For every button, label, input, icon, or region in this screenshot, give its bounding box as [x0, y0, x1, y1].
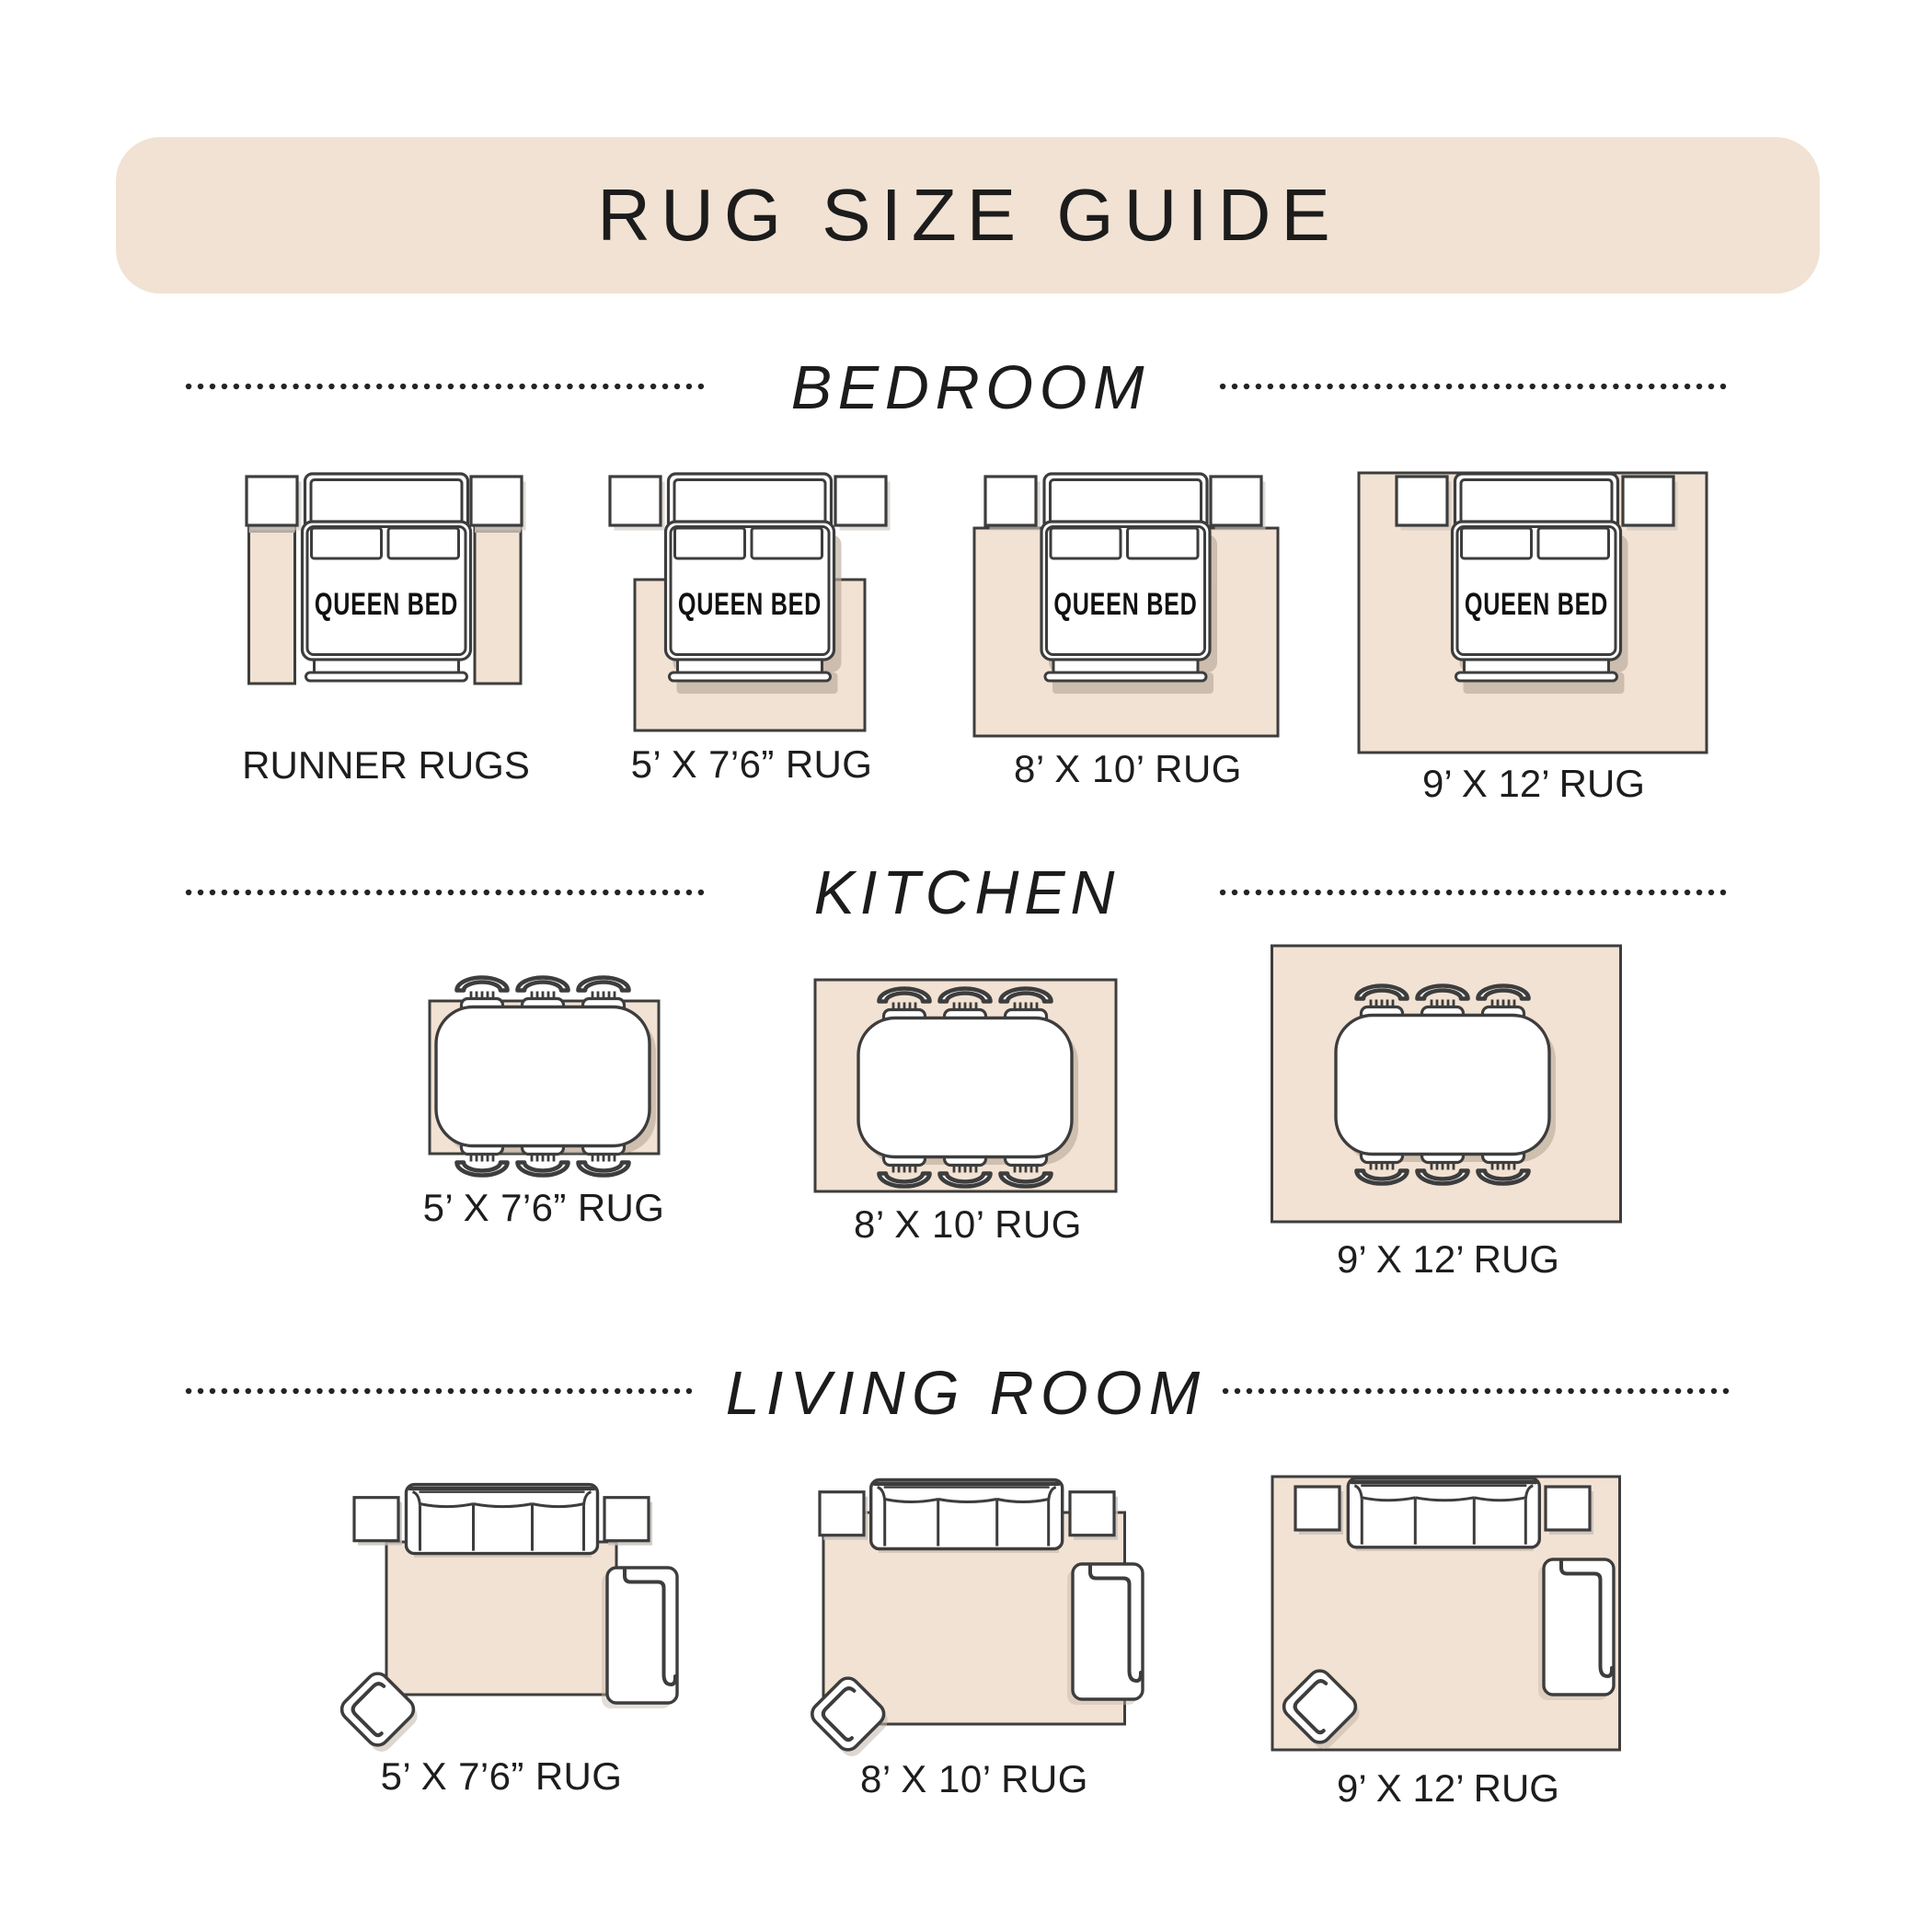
- svg-text:RUNNER RUGS: RUNNER RUGS: [242, 743, 530, 787]
- svg-text:9’ X 12’ RUG: 9’ X 12’ RUG: [1337, 1766, 1559, 1810]
- svg-text:RUG SIZE GUIDE: RUG SIZE GUIDE: [597, 174, 1340, 256]
- svg-text:8’ X 10’ RUG: 8’ X 10’ RUG: [1014, 747, 1242, 790]
- svg-text:9’ X 12’ RUG: 9’ X 12’ RUG: [1422, 762, 1645, 805]
- svg-text:8’ X 10’ RUG: 8’ X 10’ RUG: [860, 1757, 1088, 1800]
- svg-text:5’ X 7’6” RUG: 5’ X 7’6” RUG: [631, 742, 873, 786]
- svg-text:KITCHEN: KITCHEN: [814, 859, 1120, 927]
- svg-text:BEDROOM: BEDROOM: [791, 354, 1151, 422]
- svg-text:5’ X 7’6” RUG: 5’ X 7’6” RUG: [423, 1186, 665, 1229]
- svg-text:LIVING ROOM: LIVING ROOM: [726, 1360, 1207, 1428]
- svg-text:8’ X 10’ RUG: 8’ X 10’ RUG: [854, 1202, 1082, 1246]
- svg-text:9’ X 12’ RUG: 9’ X 12’ RUG: [1337, 1237, 1559, 1281]
- svg-text:5’ X 7’6” RUG: 5’ X 7’6” RUG: [381, 1754, 623, 1798]
